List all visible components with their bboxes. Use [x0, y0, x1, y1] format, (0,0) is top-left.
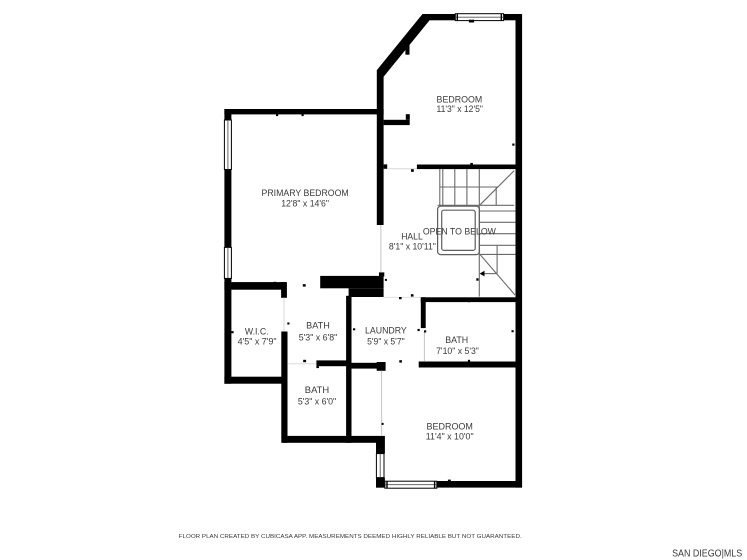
svg-text:BEDROOM: BEDROOM [437, 95, 483, 105]
svg-text:OPEN TO BELOW: OPEN TO BELOW [423, 227, 497, 237]
svg-text:HALL: HALL [401, 231, 423, 241]
svg-text:BEDROOM: BEDROOM [427, 421, 473, 431]
svg-text:8'1" x 10'11": 8'1" x 10'11" [389, 242, 436, 252]
svg-text:SAN DIEGO|MLS: SAN DIEGO|MLS [672, 548, 742, 559]
svg-text:BATH: BATH [306, 321, 330, 331]
svg-text:5'3" x 6'8": 5'3" x 6'8" [299, 333, 338, 343]
svg-text:PRIMARY BEDROOM: PRIMARY BEDROOM [262, 188, 349, 198]
svg-text:4'5" x 7'9": 4'5" x 7'9" [238, 336, 277, 346]
svg-text:BATH: BATH [305, 385, 329, 395]
svg-text:11'4" x 10'0": 11'4" x 10'0" [426, 432, 474, 442]
svg-text:5'3" x 6'0": 5'3" x 6'0" [298, 397, 336, 407]
svg-text:5'9" x 5'7": 5'9" x 5'7" [367, 337, 405, 347]
svg-text:7'10" x 5'3": 7'10" x 5'3" [436, 346, 479, 356]
svg-text:W.I.C.: W.I.C. [245, 326, 269, 336]
svg-text:FLOOR PLAN CREATED BY CUBICASA: FLOOR PLAN CREATED BY CUBICASA APP. MEAS… [179, 534, 522, 540]
svg-text:11'3" x 12'5": 11'3" x 12'5" [437, 104, 483, 114]
svg-text:12'8" x 14'6": 12'8" x 14'6" [281, 199, 329, 209]
svg-text:BATH: BATH [445, 335, 468, 345]
svg-text:LAUNDRY: LAUNDRY [365, 325, 407, 335]
